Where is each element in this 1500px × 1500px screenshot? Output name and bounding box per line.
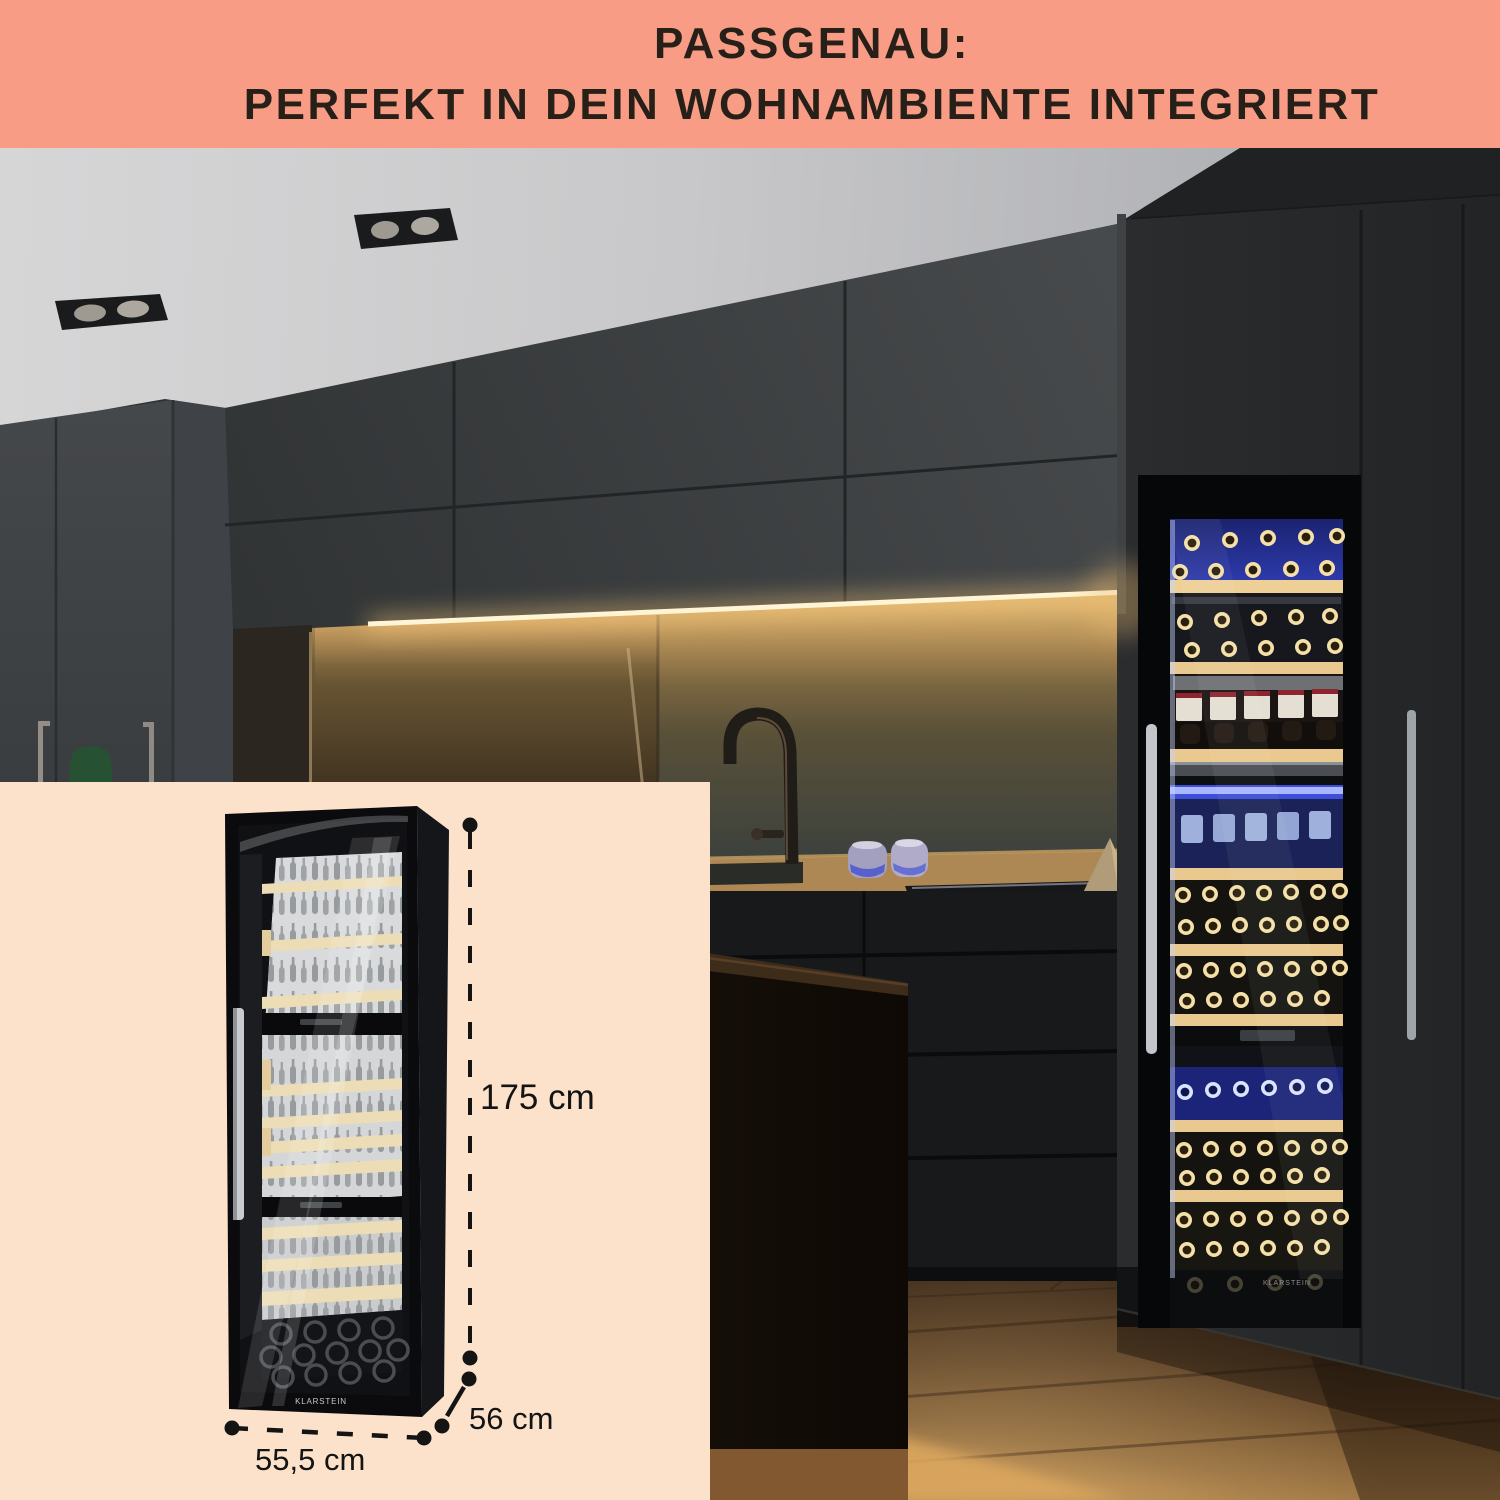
svg-text:55,5 cm: 55,5 cm [255, 1442, 365, 1477]
svg-text:PERFEKT IN DEIN WOHNAMBIENTE I: PERFEKT IN DEIN WOHNAMBIENTE INTEGRIERT [244, 80, 1380, 129]
svg-text:56 cm: 56 cm [469, 1401, 553, 1436]
svg-text:PASSGENAU:: PASSGENAU: [654, 19, 970, 68]
svg-text:KLARSTEIN: KLARSTEIN [295, 1397, 347, 1406]
svg-text:KLARSTEIN: KLARSTEIN [1263, 1280, 1311, 1287]
svg-text:175 cm: 175 cm [480, 1078, 595, 1117]
